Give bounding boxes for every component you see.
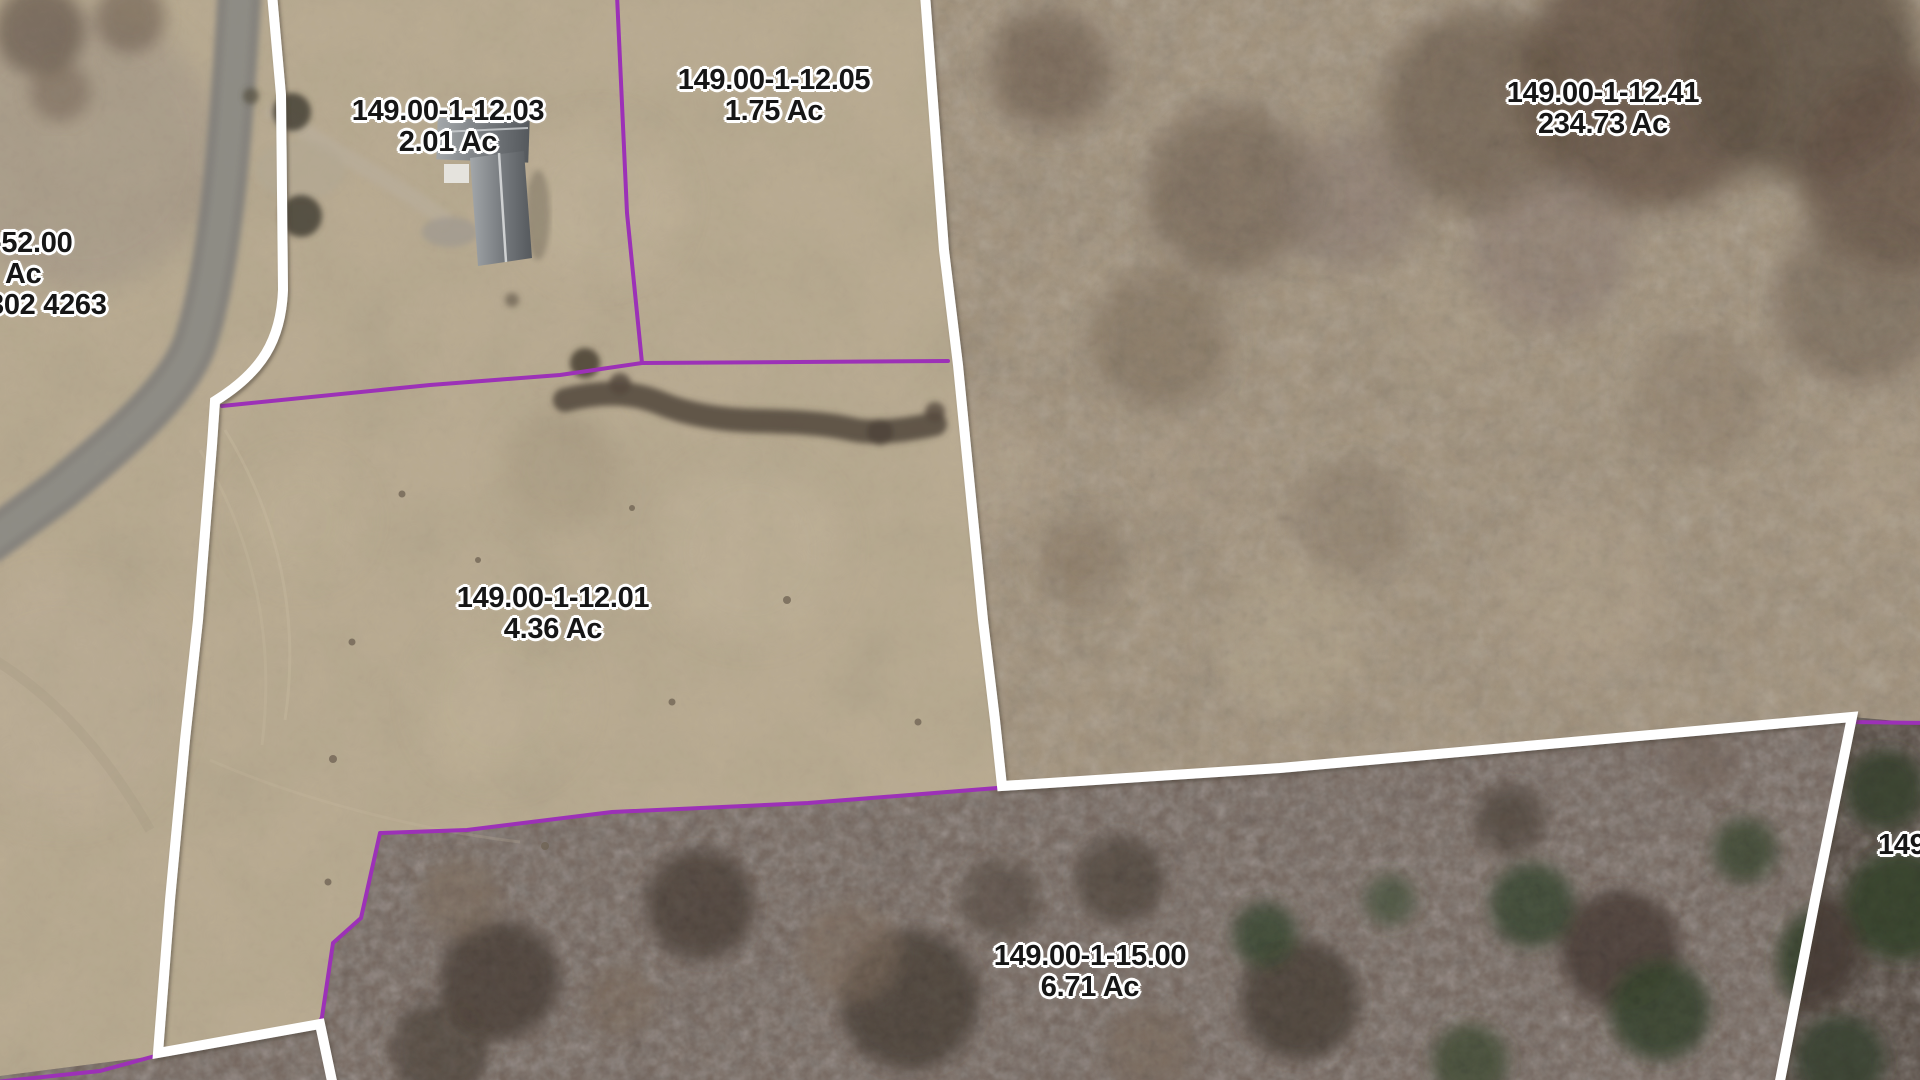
purple-line-east-stub <box>1852 722 1920 723</box>
aerial-map-svg <box>0 0 1920 1080</box>
map-canvas[interactable]: 149.00-1-12.03 2.01 Ac 149.00-1-12.05 1.… <box>0 0 1920 1080</box>
